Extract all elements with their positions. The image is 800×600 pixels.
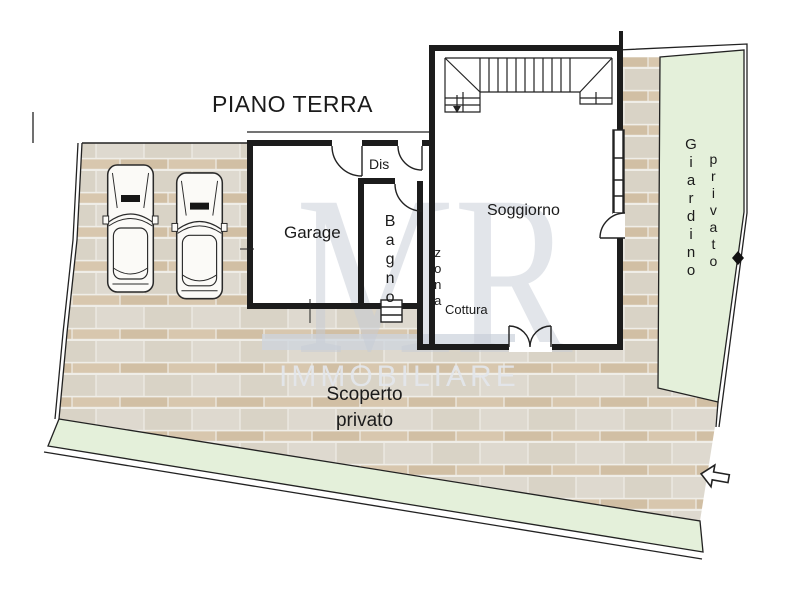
scoperto-label-line1: Scoperto bbox=[282, 382, 447, 408]
car-icon bbox=[172, 173, 227, 299]
garden-label-privato: privato bbox=[705, 151, 720, 270]
scoperto-label-line2: privato bbox=[282, 408, 447, 434]
garden-label-giardino: Giardino bbox=[682, 136, 699, 280]
room-label-cottura: Cottura bbox=[445, 303, 488, 317]
room-label-dis: Dis bbox=[369, 157, 389, 172]
room-label-garage: Garage bbox=[284, 224, 341, 243]
room-label-bagno: Bagno bbox=[381, 213, 399, 308]
room-label-soggiorno: Soggiorno bbox=[487, 202, 560, 220]
car-icon bbox=[103, 165, 158, 292]
scoperto-label: Scoperto privato bbox=[282, 382, 447, 434]
room-label-zona: zona bbox=[430, 245, 444, 309]
floor-plan: MR IMMOBILIARE bbox=[0, 0, 800, 600]
private-garden-area bbox=[658, 50, 744, 402]
page-title: PIANO TERRA bbox=[212, 92, 373, 117]
floor-plan-canvas: MR IMMOBILIARE bbox=[0, 0, 800, 600]
